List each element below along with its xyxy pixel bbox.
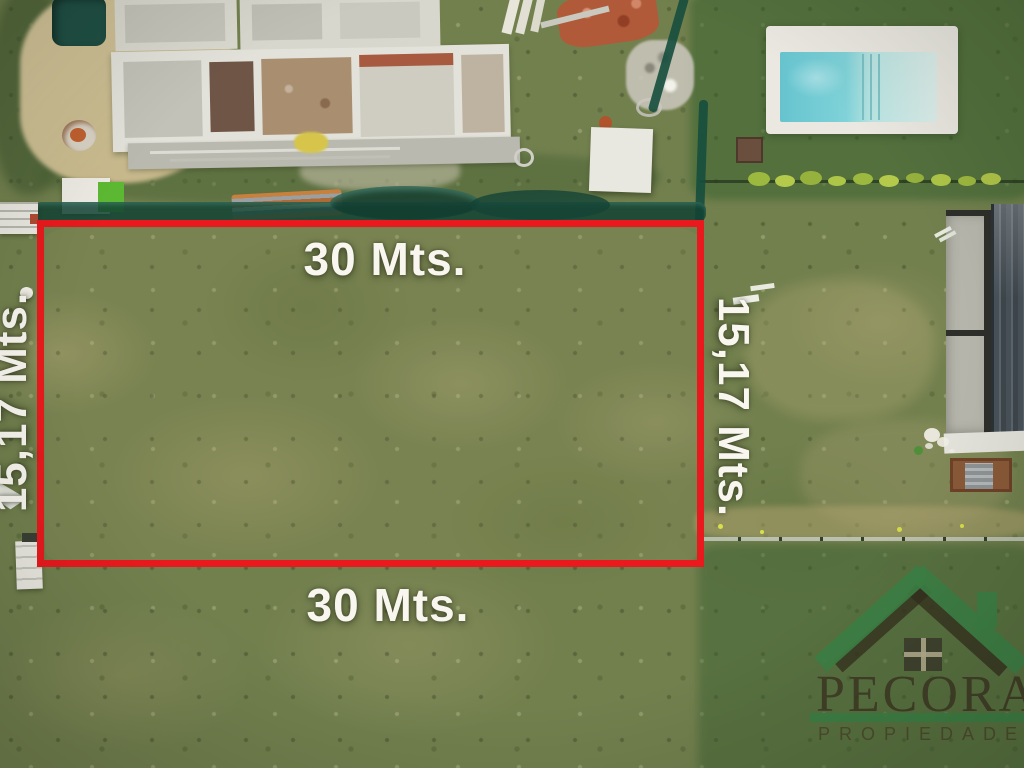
room-floor-far-right [461, 54, 505, 133]
porch-beam-top [946, 210, 990, 216]
room-floor-rubble [261, 57, 353, 135]
brick-wall-top [359, 53, 453, 67]
flower-dot-3 [897, 527, 902, 532]
shrub [748, 172, 770, 186]
tarp-pile [52, 0, 106, 46]
house-roof [991, 204, 1024, 440]
dimension-label-right: 15,17 Mts. [708, 292, 758, 522]
dimension-label-left: 15,17 Mts. [0, 287, 37, 517]
house-fascia [944, 430, 1024, 453]
neighbor-house [944, 204, 1024, 456]
tarp-fold-1 [330, 186, 480, 220]
room-floor-dark [209, 61, 254, 132]
flower-dot-4 [960, 524, 964, 528]
dimension-label-bottom: 30 Mts. [283, 580, 493, 630]
slab-top-1-floor [125, 3, 226, 43]
slab-top-2 [240, 0, 441, 50]
porch-beam-mid [946, 330, 990, 336]
aerial-photo: 30 Mts. 30 Mts. 15,17 Mts. 15,17 Mts. PE… [0, 0, 1024, 768]
flower-dot-1 [718, 524, 723, 529]
porch-beam-left [984, 210, 991, 436]
wood-deck [950, 458, 1012, 492]
white-debris-blob [924, 428, 940, 442]
logo-underline [810, 713, 1024, 722]
wire-fence-bottom-right [700, 537, 1024, 541]
dry-patch-right-1 [745, 280, 935, 420]
slab-top-2-floor-b [340, 2, 421, 39]
deck-steps [965, 463, 993, 489]
pool-steps [856, 54, 882, 120]
brown-table [736, 137, 763, 163]
slab-top-2-floor-a [252, 3, 323, 40]
flower-dot-2 [760, 530, 764, 534]
pool-water [780, 52, 937, 122]
green-plant-dot [914, 446, 923, 455]
dimension-label-top: 30 Mts. [280, 234, 490, 284]
slab-top-1 [114, 0, 237, 51]
white-shed [589, 127, 653, 193]
tarp-fold-2 [470, 190, 610, 220]
pool-ripple [786, 58, 846, 98]
pipe-coil [514, 148, 534, 167]
orange-material [70, 128, 86, 142]
yellow-bucket [294, 132, 328, 153]
utility-box-cap [22, 533, 38, 542]
room-floor-gray [123, 60, 203, 138]
watermark-tagline: PROPIEDADES [818, 724, 1024, 745]
